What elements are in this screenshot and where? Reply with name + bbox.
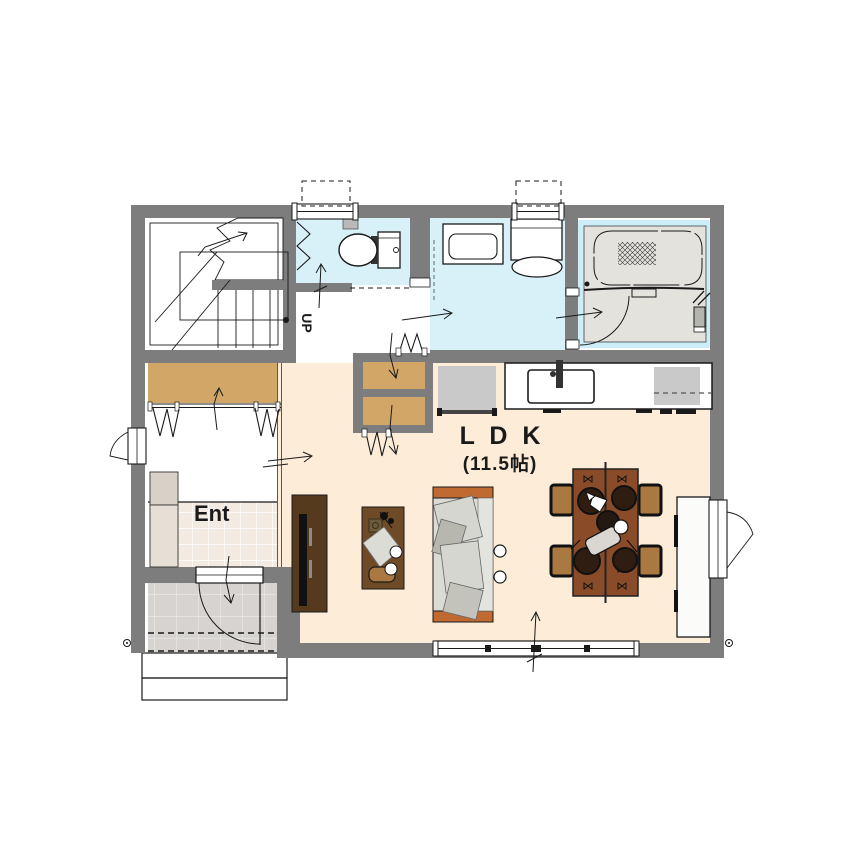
shoe-cabinet [150,472,178,567]
refrigerator-rail [440,410,494,414]
porch-steps [142,653,287,700]
vanity [511,219,562,277]
floor-plan-page: UP [0,0,859,859]
toilet-bowl [339,234,377,266]
vanity-basin [512,257,562,277]
eave-overhang [516,181,561,206]
wall-top [131,205,724,218]
up-start-dot [283,317,289,323]
stove [654,367,700,405]
downspout-marker [726,640,733,647]
sofa [432,487,493,622]
counter-handle [674,515,678,547]
tub-step [632,289,656,297]
window-left-swing [110,432,128,460]
wall-below-stairs [145,350,296,363]
closet-lower [363,397,425,425]
door-knob-dot [585,282,590,287]
porch [148,583,277,653]
up-label: UP [299,313,315,332]
wall-counter [674,497,710,637]
back-door-right [709,500,753,578]
tv-board [292,495,327,612]
toilet [339,232,400,268]
washroom-door-post [410,278,430,287]
wall-toilet-right [410,218,430,287]
window-left [110,428,146,464]
wall-wet-bottom [430,350,724,363]
downspout-marker [124,640,131,647]
dining-chair [639,485,661,515]
ldk-size-label: (11.5帖) [463,452,538,475]
dining-chair [639,546,661,576]
kitchen [437,360,712,416]
floor-plan: UP [0,0,859,859]
ent-label: Ent [194,501,230,526]
wall-wash-bath [565,218,578,350]
bathtub-texture [618,242,656,265]
faucet [556,360,563,388]
hallway-floor [296,285,430,363]
wall-right [710,205,724,658]
eave-overhang [302,181,350,206]
sofa-armrest-top [433,487,493,498]
tv [299,514,307,606]
study-desk [362,507,404,589]
dining-chair [551,485,573,515]
ldk-label: L D K [460,422,545,450]
back-door-swing [727,512,753,568]
washing-machine [443,224,503,264]
refrigerator [438,366,496,414]
entrance-closet [148,363,277,403]
counter-handle [674,590,678,612]
wall-stair-right [283,218,296,363]
dining-chair [551,546,573,576]
